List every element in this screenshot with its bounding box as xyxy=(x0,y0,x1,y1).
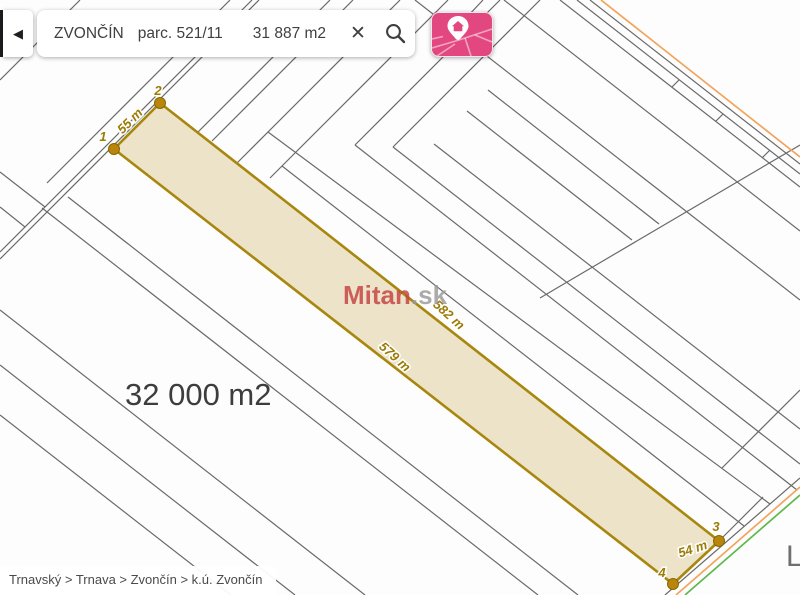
search-area-text: 31 887 m2 xyxy=(253,25,326,43)
search-submit-button[interactable] xyxy=(384,22,408,46)
map-pin-icon xyxy=(432,13,492,56)
vertex-point-3 xyxy=(714,536,725,547)
search-region-text: ZVONČÍN xyxy=(54,25,124,43)
search-parcel-text: parc. 521/11 xyxy=(138,25,223,43)
breadcrumb[interactable]: Trnavský > Trnava > Zvončín > k.ú. Zvonč… xyxy=(0,566,276,595)
vertex-point-4 xyxy=(668,579,679,590)
back-button[interactable]: ◀ xyxy=(3,10,33,57)
search-icon xyxy=(384,22,408,46)
vertex-label-4: 4 xyxy=(657,565,666,580)
parcel-area-label: 32 000 m2 xyxy=(125,377,272,412)
map-canvas[interactable]: 1 2 3 4 55 m 582 m 579 m 54 m 32 000 m2 … xyxy=(0,0,800,595)
highlighted-parcel[interactable] xyxy=(114,103,719,584)
clipped-map-label: L xyxy=(786,540,800,573)
watermark-brand: Mitan xyxy=(343,280,411,310)
vertex-point-1 xyxy=(109,144,120,155)
cadastral-map-app: 1 2 3 4 55 m 582 m 579 m 54 m 32 000 m2 … xyxy=(0,0,800,595)
vertex-label-1: 1 xyxy=(99,129,106,144)
vertex-label-3: 3 xyxy=(712,519,720,534)
watermark-tld: .sk xyxy=(411,280,448,310)
vertex-label-2: 2 xyxy=(153,83,162,98)
back-icon: ◀ xyxy=(13,26,23,42)
search-bar[interactable]: ZVONČÍN parc. 521/11 31 887 m2 ✕ xyxy=(37,10,415,57)
vertex-point-2 xyxy=(155,98,166,109)
watermark: Mitan.sk xyxy=(343,280,448,310)
clear-search-button[interactable]: ✕ xyxy=(350,24,366,43)
map-style-button[interactable] xyxy=(431,12,493,57)
